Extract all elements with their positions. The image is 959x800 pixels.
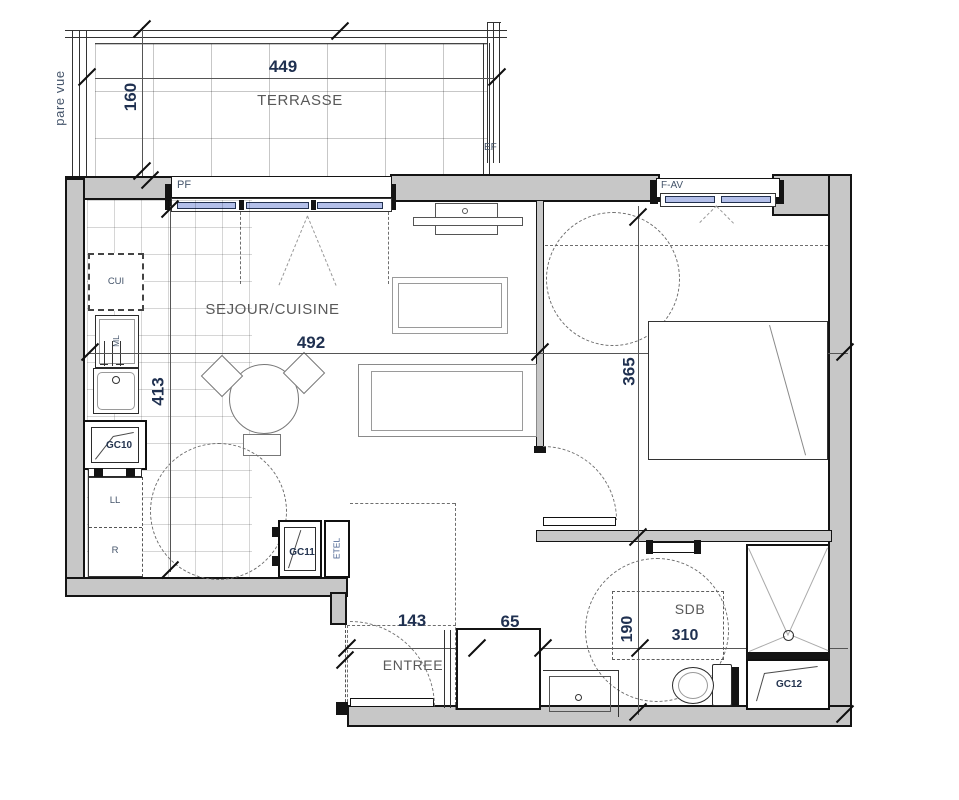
pf-window-frame — [171, 176, 392, 198]
duct-gc10-base-block — [94, 468, 103, 477]
toilet-tank — [712, 664, 732, 706]
placard-65 — [456, 628, 541, 710]
etel-label: ETEL — [332, 524, 343, 574]
pare-vue-rail — [72, 30, 73, 185]
wall-top-middle — [390, 174, 660, 202]
ll-label: LL — [100, 495, 130, 506]
entry-door-swing-arc — [350, 621, 435, 707]
pf-opening-dash — [388, 212, 389, 284]
wall-chambre-sdb — [536, 530, 832, 542]
pf-glazing-panel — [246, 202, 309, 209]
ef-label: EF — [484, 142, 497, 153]
r-label: R — [100, 545, 130, 556]
drain-rack-foot — [116, 364, 124, 365]
dim-tick — [78, 68, 96, 86]
terrace-outer-rail-line — [65, 30, 507, 31]
gc11-label: GC11 — [282, 547, 322, 558]
shower-gc12-divider — [746, 652, 830, 659]
pf-glazing-panel — [317, 202, 383, 209]
dim-line-sejour-depth — [170, 206, 171, 572]
pf-opening-dash — [307, 216, 337, 286]
ef-pipe-line — [489, 43, 490, 175]
dim-sejour-depth: 413 — [149, 362, 166, 422]
room-label-terrasse: TERRASSE — [235, 92, 365, 109]
terrace-right-rail-top — [487, 22, 501, 23]
sliding-door-cap — [694, 540, 701, 554]
rug-inner — [371, 371, 523, 431]
fav-glazing-panel — [665, 196, 715, 203]
cui-label: CUI — [98, 276, 134, 287]
fav-label: F-AV — [661, 180, 683, 191]
entry-door-hinge — [336, 702, 348, 715]
chambre-door-swing-arc — [543, 446, 617, 520]
entry-boundary-dash — [345, 625, 346, 707]
dim-terrace-width: 449 — [258, 57, 308, 77]
washbasin-drain — [575, 694, 582, 701]
pf-mullion — [311, 200, 316, 210]
pf-label: PF — [177, 179, 191, 191]
drain-rack-foot — [100, 364, 108, 365]
wall-left — [65, 178, 85, 597]
dim-line-terrace-width — [95, 78, 497, 79]
gc10-label: GC10 — [99, 440, 139, 451]
gc11-hinge — [272, 556, 279, 566]
wall-step-left-of-entry — [330, 592, 347, 625]
duct-gc10-base-block — [126, 468, 135, 477]
dim-line-terrace-depth — [142, 27, 143, 177]
floor-plan-canvas: pare vue EF 449 160 TERRASSE PF F-AV — [0, 0, 959, 800]
dim-terrace-depth: 160 — [121, 67, 137, 127]
terrace-right-rail — [499, 22, 500, 163]
faucet-icon — [112, 376, 120, 384]
pare-vue-rail — [79, 30, 80, 185]
tv-console-knob — [462, 208, 468, 214]
pf-opening-dash — [278, 216, 308, 286]
fav-glazing-panel — [721, 196, 771, 203]
wall-bottom-left — [65, 577, 348, 597]
pare-vue-rail — [86, 30, 87, 185]
wall-right — [828, 174, 852, 727]
tv-console-bar — [413, 217, 523, 226]
ll-r-divider — [89, 527, 142, 528]
zone-dash — [347, 625, 348, 707]
fav-opening-dash — [716, 206, 734, 224]
room-label-sejour: SEJOUR/CUISINE — [205, 301, 340, 318]
dim-sejour-width: 492 — [288, 333, 334, 353]
toilet-wall-block — [732, 667, 739, 705]
zone-dash — [350, 503, 455, 504]
dim-chambre-depth: 365 — [620, 342, 637, 402]
sliding-door-cap — [646, 540, 653, 554]
pare-vue-label: pare vue — [52, 58, 68, 138]
gc12-label: GC12 — [764, 679, 814, 690]
wall-divider-sejour-chambre — [536, 200, 544, 452]
toilet-bowl-inner — [678, 672, 708, 699]
gc11-hinge — [272, 527, 279, 537]
dim-tick — [488, 68, 506, 86]
sliding-door — [648, 542, 700, 553]
terrace-outer-rail-line — [65, 37, 507, 38]
dim-entree-width: 143 — [392, 611, 432, 631]
sofa-inner — [398, 283, 502, 328]
placard-wall-line — [450, 630, 451, 708]
placard-wall-line — [444, 630, 445, 708]
fav-opening-dash — [699, 205, 717, 223]
ef-pipe-line — [483, 43, 484, 175]
shower-drain — [783, 630, 794, 641]
